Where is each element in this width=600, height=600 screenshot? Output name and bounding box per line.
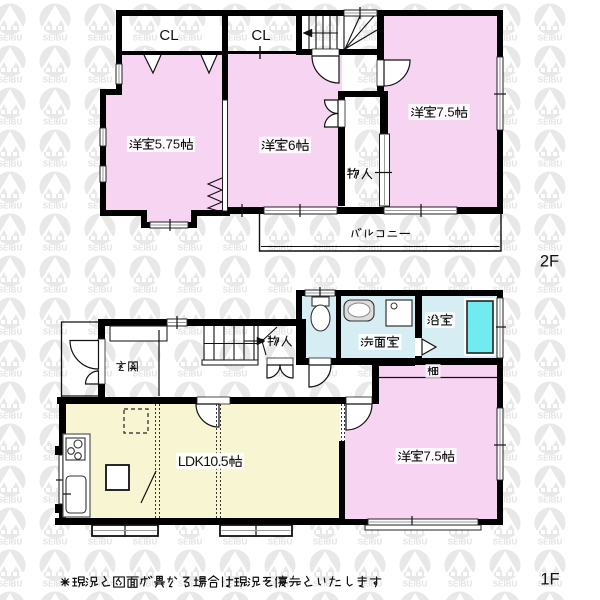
svg-text:5.75: 5.75 [155, 137, 180, 152]
svg-text:2F: 2F [540, 253, 559, 271]
svg-text:7.5: 7.5 [424, 449, 442, 464]
svg-text:1F: 1F [540, 571, 559, 589]
svg-text:7.5: 7.5 [437, 105, 455, 120]
svg-text:LDK10.5: LDK10.5 [178, 453, 229, 469]
svg-text:CL: CL [251, 27, 270, 44]
svg-text:CL: CL [159, 27, 178, 44]
svg-text:6: 6 [288, 138, 296, 153]
